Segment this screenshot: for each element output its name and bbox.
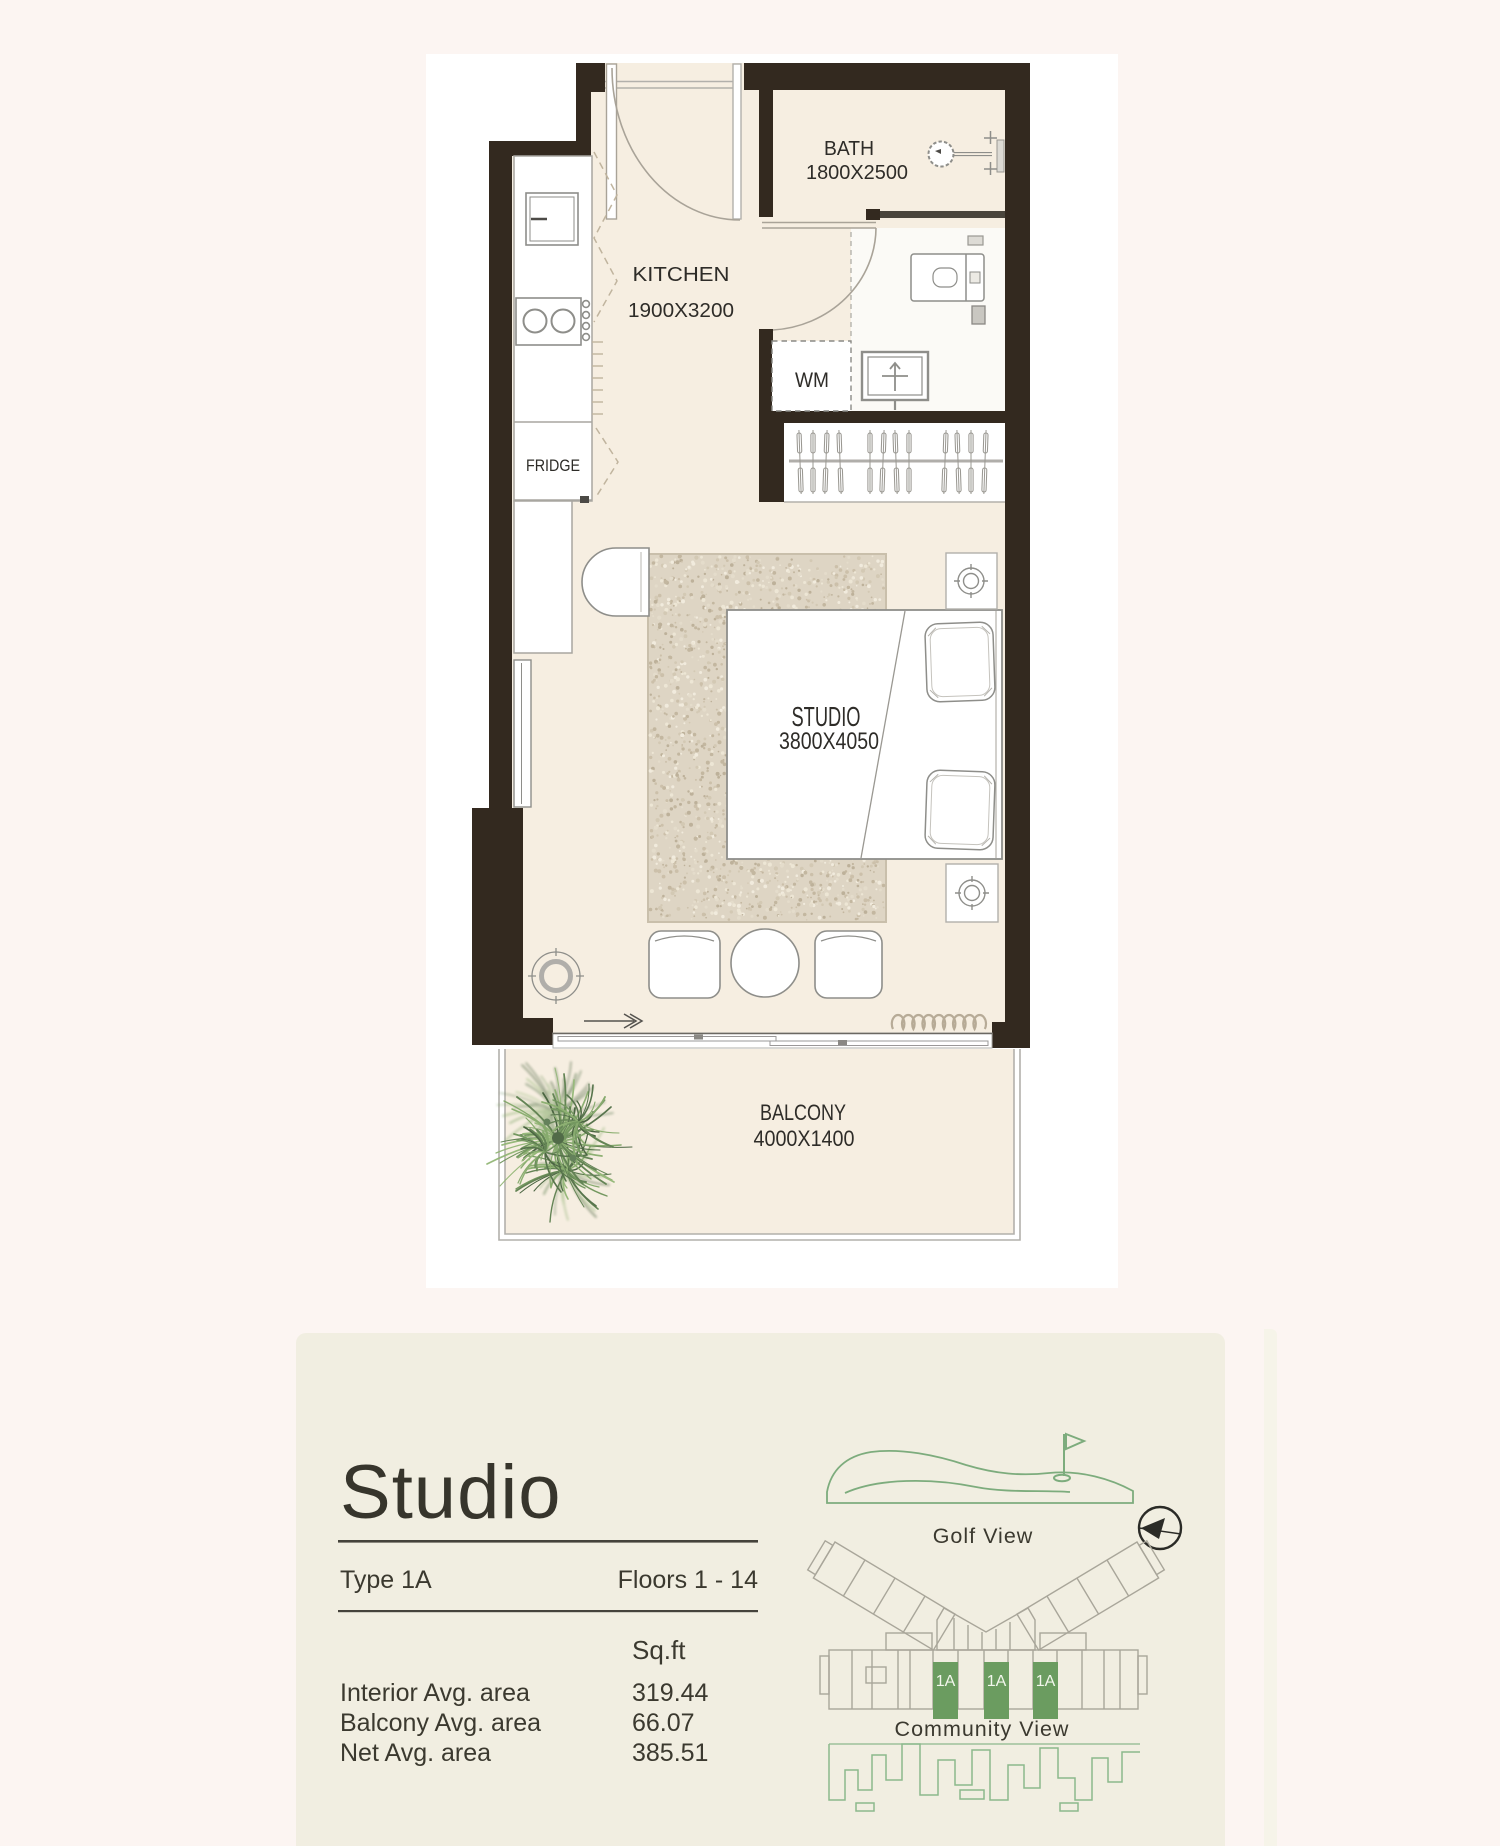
svg-text:FRIDGE: FRIDGE — [526, 457, 580, 475]
svg-text:4000X1400: 4000X1400 — [754, 1126, 855, 1151]
svg-text:1A: 1A — [987, 1673, 1007, 1690]
svg-text:Floors 1 - 14: Floors 1 - 14 — [618, 1566, 758, 1594]
svg-text:Balcony Avg. area: Balcony Avg. area — [340, 1709, 541, 1737]
svg-text:1800X2500: 1800X2500 — [806, 162, 908, 184]
svg-text:WM: WM — [795, 369, 829, 392]
svg-text:BALCONY: BALCONY — [760, 1100, 846, 1125]
svg-text:BATH: BATH — [824, 138, 874, 160]
svg-text:385.51: 385.51 — [632, 1739, 708, 1767]
svg-text:Sq.ft: Sq.ft — [632, 1635, 686, 1665]
svg-text:Community View: Community View — [895, 1717, 1070, 1741]
svg-text:Golf View: Golf View — [933, 1524, 1034, 1548]
svg-text:1900X3200: 1900X3200 — [628, 300, 734, 322]
svg-text:319.44: 319.44 — [632, 1679, 709, 1707]
svg-text:Interior Avg. area: Interior Avg. area — [340, 1679, 530, 1707]
svg-text:KITCHEN: KITCHEN — [633, 264, 730, 286]
svg-text:Net Avg. area: Net Avg. area — [340, 1739, 491, 1767]
svg-text:1A: 1A — [1036, 1673, 1056, 1690]
svg-text:3800X4050: 3800X4050 — [779, 728, 879, 755]
svg-text:Studio: Studio — [340, 1450, 562, 1535]
svg-text:66.07: 66.07 — [632, 1709, 695, 1737]
svg-text:1A: 1A — [936, 1673, 956, 1690]
svg-text:Type 1A: Type 1A — [340, 1566, 432, 1594]
